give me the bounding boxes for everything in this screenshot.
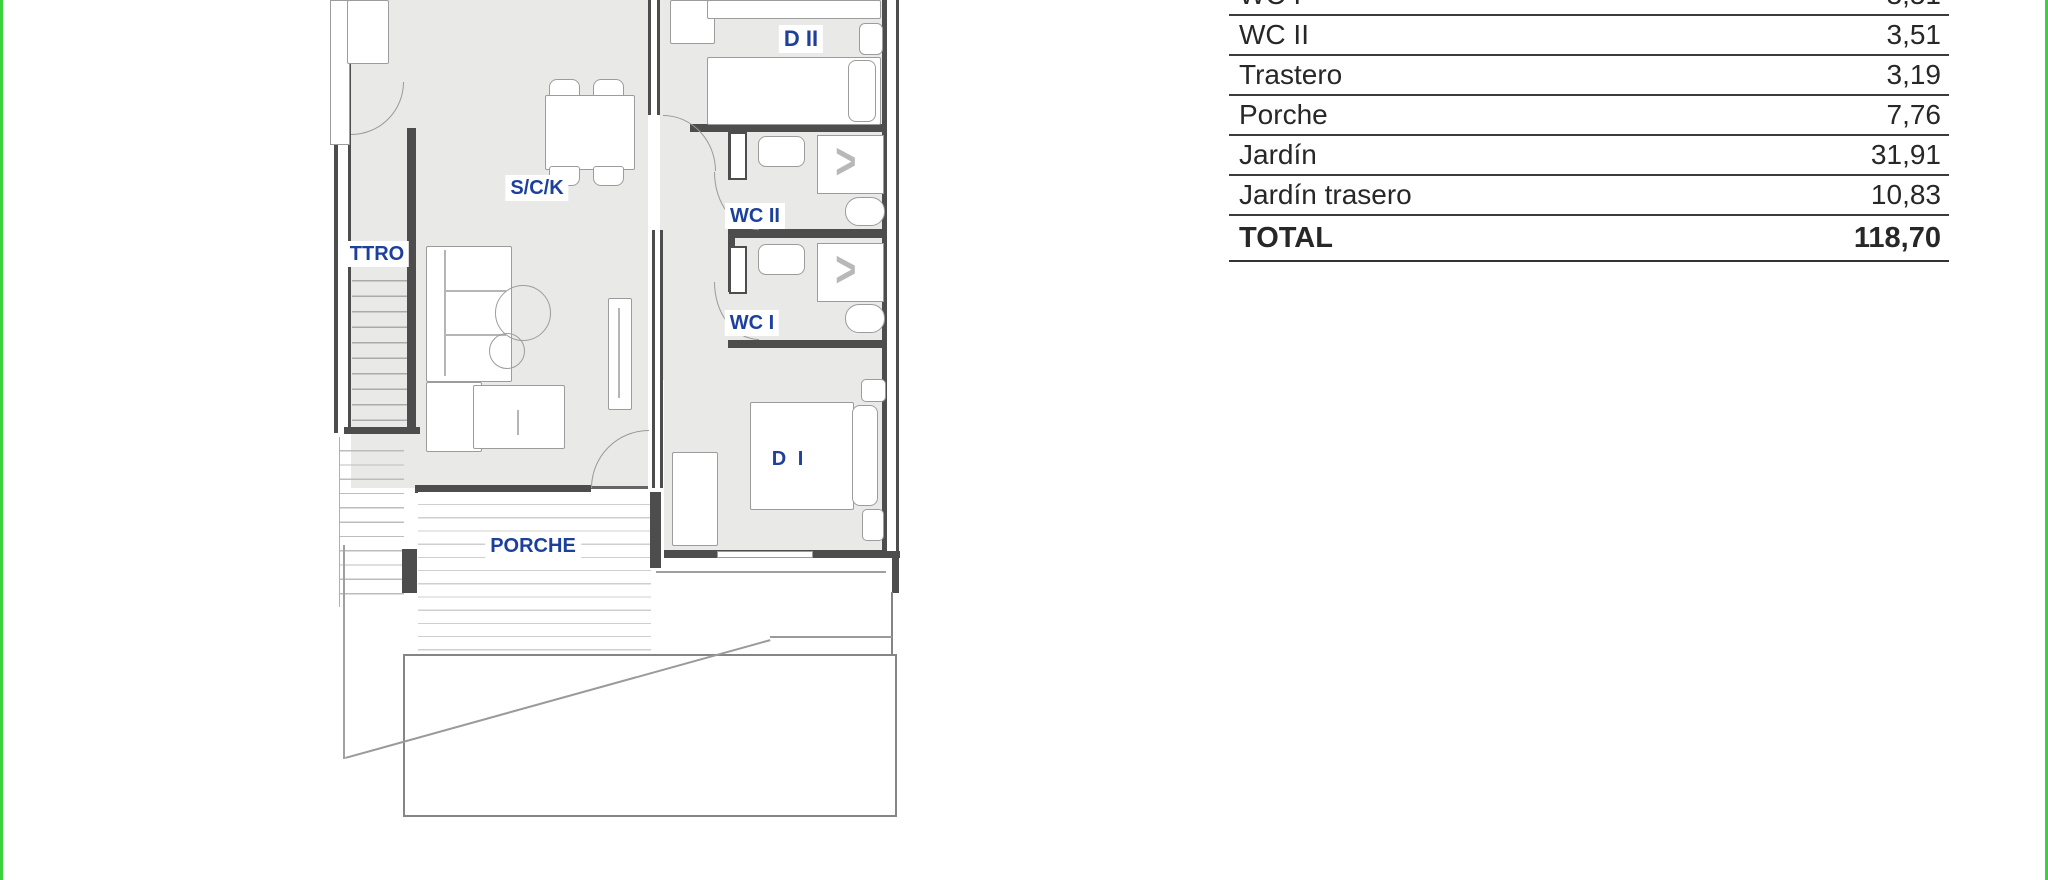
table-row: Trastero 3,19	[1229, 56, 1949, 96]
total-value: 118,70	[1854, 222, 1941, 255]
area-value: 10,83	[1871, 179, 1941, 211]
sofa-seam	[444, 250, 446, 376]
room-label-porche: PORCHE	[485, 533, 581, 559]
table-seam	[517, 410, 519, 435]
round-stool	[489, 333, 525, 369]
nightstand	[861, 379, 886, 402]
wall-segment	[892, 551, 899, 593]
shower-symbol-icon: >	[835, 242, 856, 300]
window-bedroom1	[717, 551, 813, 558]
shower-symbol-icon: >	[835, 134, 856, 192]
wall-segment	[896, 0, 899, 556]
sink	[758, 136, 805, 167]
floor-plan: > > D II S/C/K TTRO WC II WC I D I POR	[330, 0, 920, 880]
site-line	[343, 545, 345, 759]
pillow	[852, 405, 878, 506]
area-value: 3,51	[1887, 0, 1942, 11]
area-label: Trastero	[1239, 59, 1342, 91]
table-row: Jardín trasero 10,83	[1229, 176, 1949, 216]
site-line	[770, 636, 892, 638]
area-label: WC II	[1239, 19, 1309, 51]
area-label: Porche	[1239, 99, 1328, 131]
closet	[347, 0, 389, 64]
wall-segment	[407, 128, 416, 433]
green-border-left	[0, 0, 3, 880]
room-label-wc1: WC I	[725, 310, 779, 336]
area-value: 3,51	[1887, 19, 1942, 51]
room-label-wc2: WC II	[725, 203, 785, 229]
coffee-table	[473, 385, 565, 449]
nightstand	[862, 509, 884, 541]
sink	[758, 244, 805, 275]
bed-single	[707, 0, 881, 19]
area-value: 31,91	[1871, 139, 1941, 171]
wall-segment	[728, 340, 886, 348]
table-row: Jardín 31,91	[1229, 136, 1949, 176]
porch-pillar	[402, 549, 417, 593]
wall-segment	[344, 427, 420, 434]
wall-segment	[690, 124, 886, 132]
area-label: Jardín	[1239, 139, 1317, 171]
site-line	[656, 571, 886, 573]
table-row: Porche 7,76	[1229, 96, 1949, 136]
room-label-bedroom2: D II	[779, 25, 823, 53]
wall-segment	[650, 492, 661, 568]
exterior-steps	[339, 437, 404, 607]
table-row-total: TOTAL 118,70	[1229, 216, 1949, 262]
toilet	[845, 304, 885, 333]
interior-stairs	[352, 266, 407, 428]
chair	[593, 166, 624, 186]
garden-boundary	[403, 654, 897, 817]
screenshot-root: > > D II S/C/K TTRO WC II WC I D I POR	[0, 0, 2048, 880]
area-value: 7,76	[1887, 99, 1942, 131]
porch-slab	[418, 492, 651, 654]
wall-segment	[652, 230, 663, 488]
table-row: WC II 3,51	[1229, 16, 1949, 56]
wall-segment	[728, 229, 886, 238]
nightstand	[859, 23, 883, 55]
wardrobe	[672, 452, 718, 546]
pillow	[848, 60, 876, 122]
sofa-seam	[444, 290, 506, 292]
wall-segment	[648, 0, 660, 115]
total-label: TOTAL	[1239, 222, 1333, 255]
area-value: 3,19	[1887, 59, 1942, 91]
site-line	[891, 592, 893, 656]
room-label-trastero: TTRO	[345, 241, 409, 267]
cabinet-seam	[618, 308, 620, 398]
table-row: WC I 3,51	[1229, 0, 1949, 16]
dining-table	[545, 95, 635, 170]
areas-table: WC I 3,51 WC II 3,51 Trastero 3,19 Porch…	[1229, 0, 1949, 262]
area-label: WC I	[1239, 0, 1301, 11]
tall-cabinet	[608, 298, 632, 410]
toilet	[845, 197, 885, 226]
area-label: Jardín trasero	[1239, 179, 1412, 211]
room-label-bedroom1: D I	[767, 446, 812, 472]
room-label-salon-cocina: S/C/K	[505, 175, 568, 201]
